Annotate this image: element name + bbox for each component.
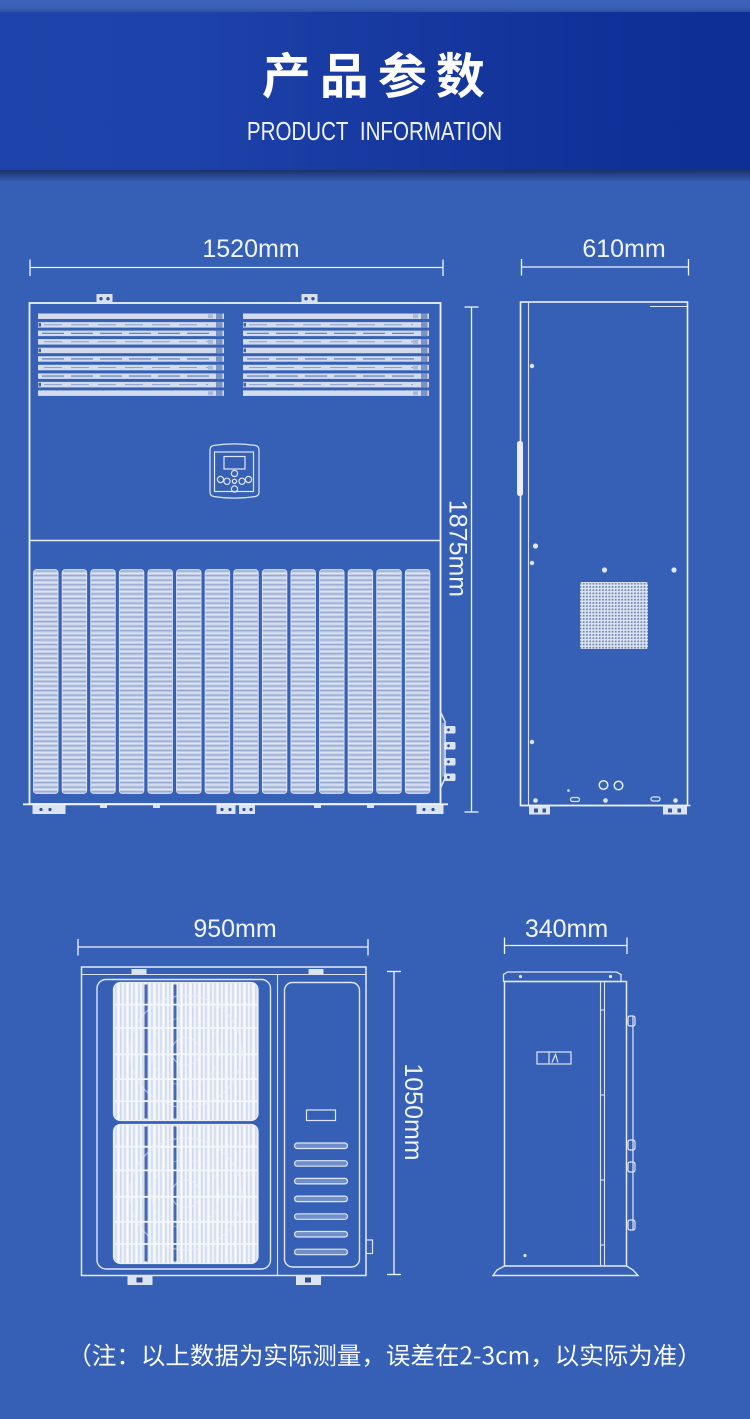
svg-text:1875mm: 1875mm [444, 500, 472, 597]
svg-text:1050mm: 1050mm [399, 1063, 427, 1160]
svg-text:610mm: 610mm [582, 235, 665, 263]
svg-text:1520mm: 1520mm [202, 235, 299, 263]
svg-text:340mm: 340mm [525, 915, 608, 943]
svg-text:950mm: 950mm [193, 915, 276, 943]
